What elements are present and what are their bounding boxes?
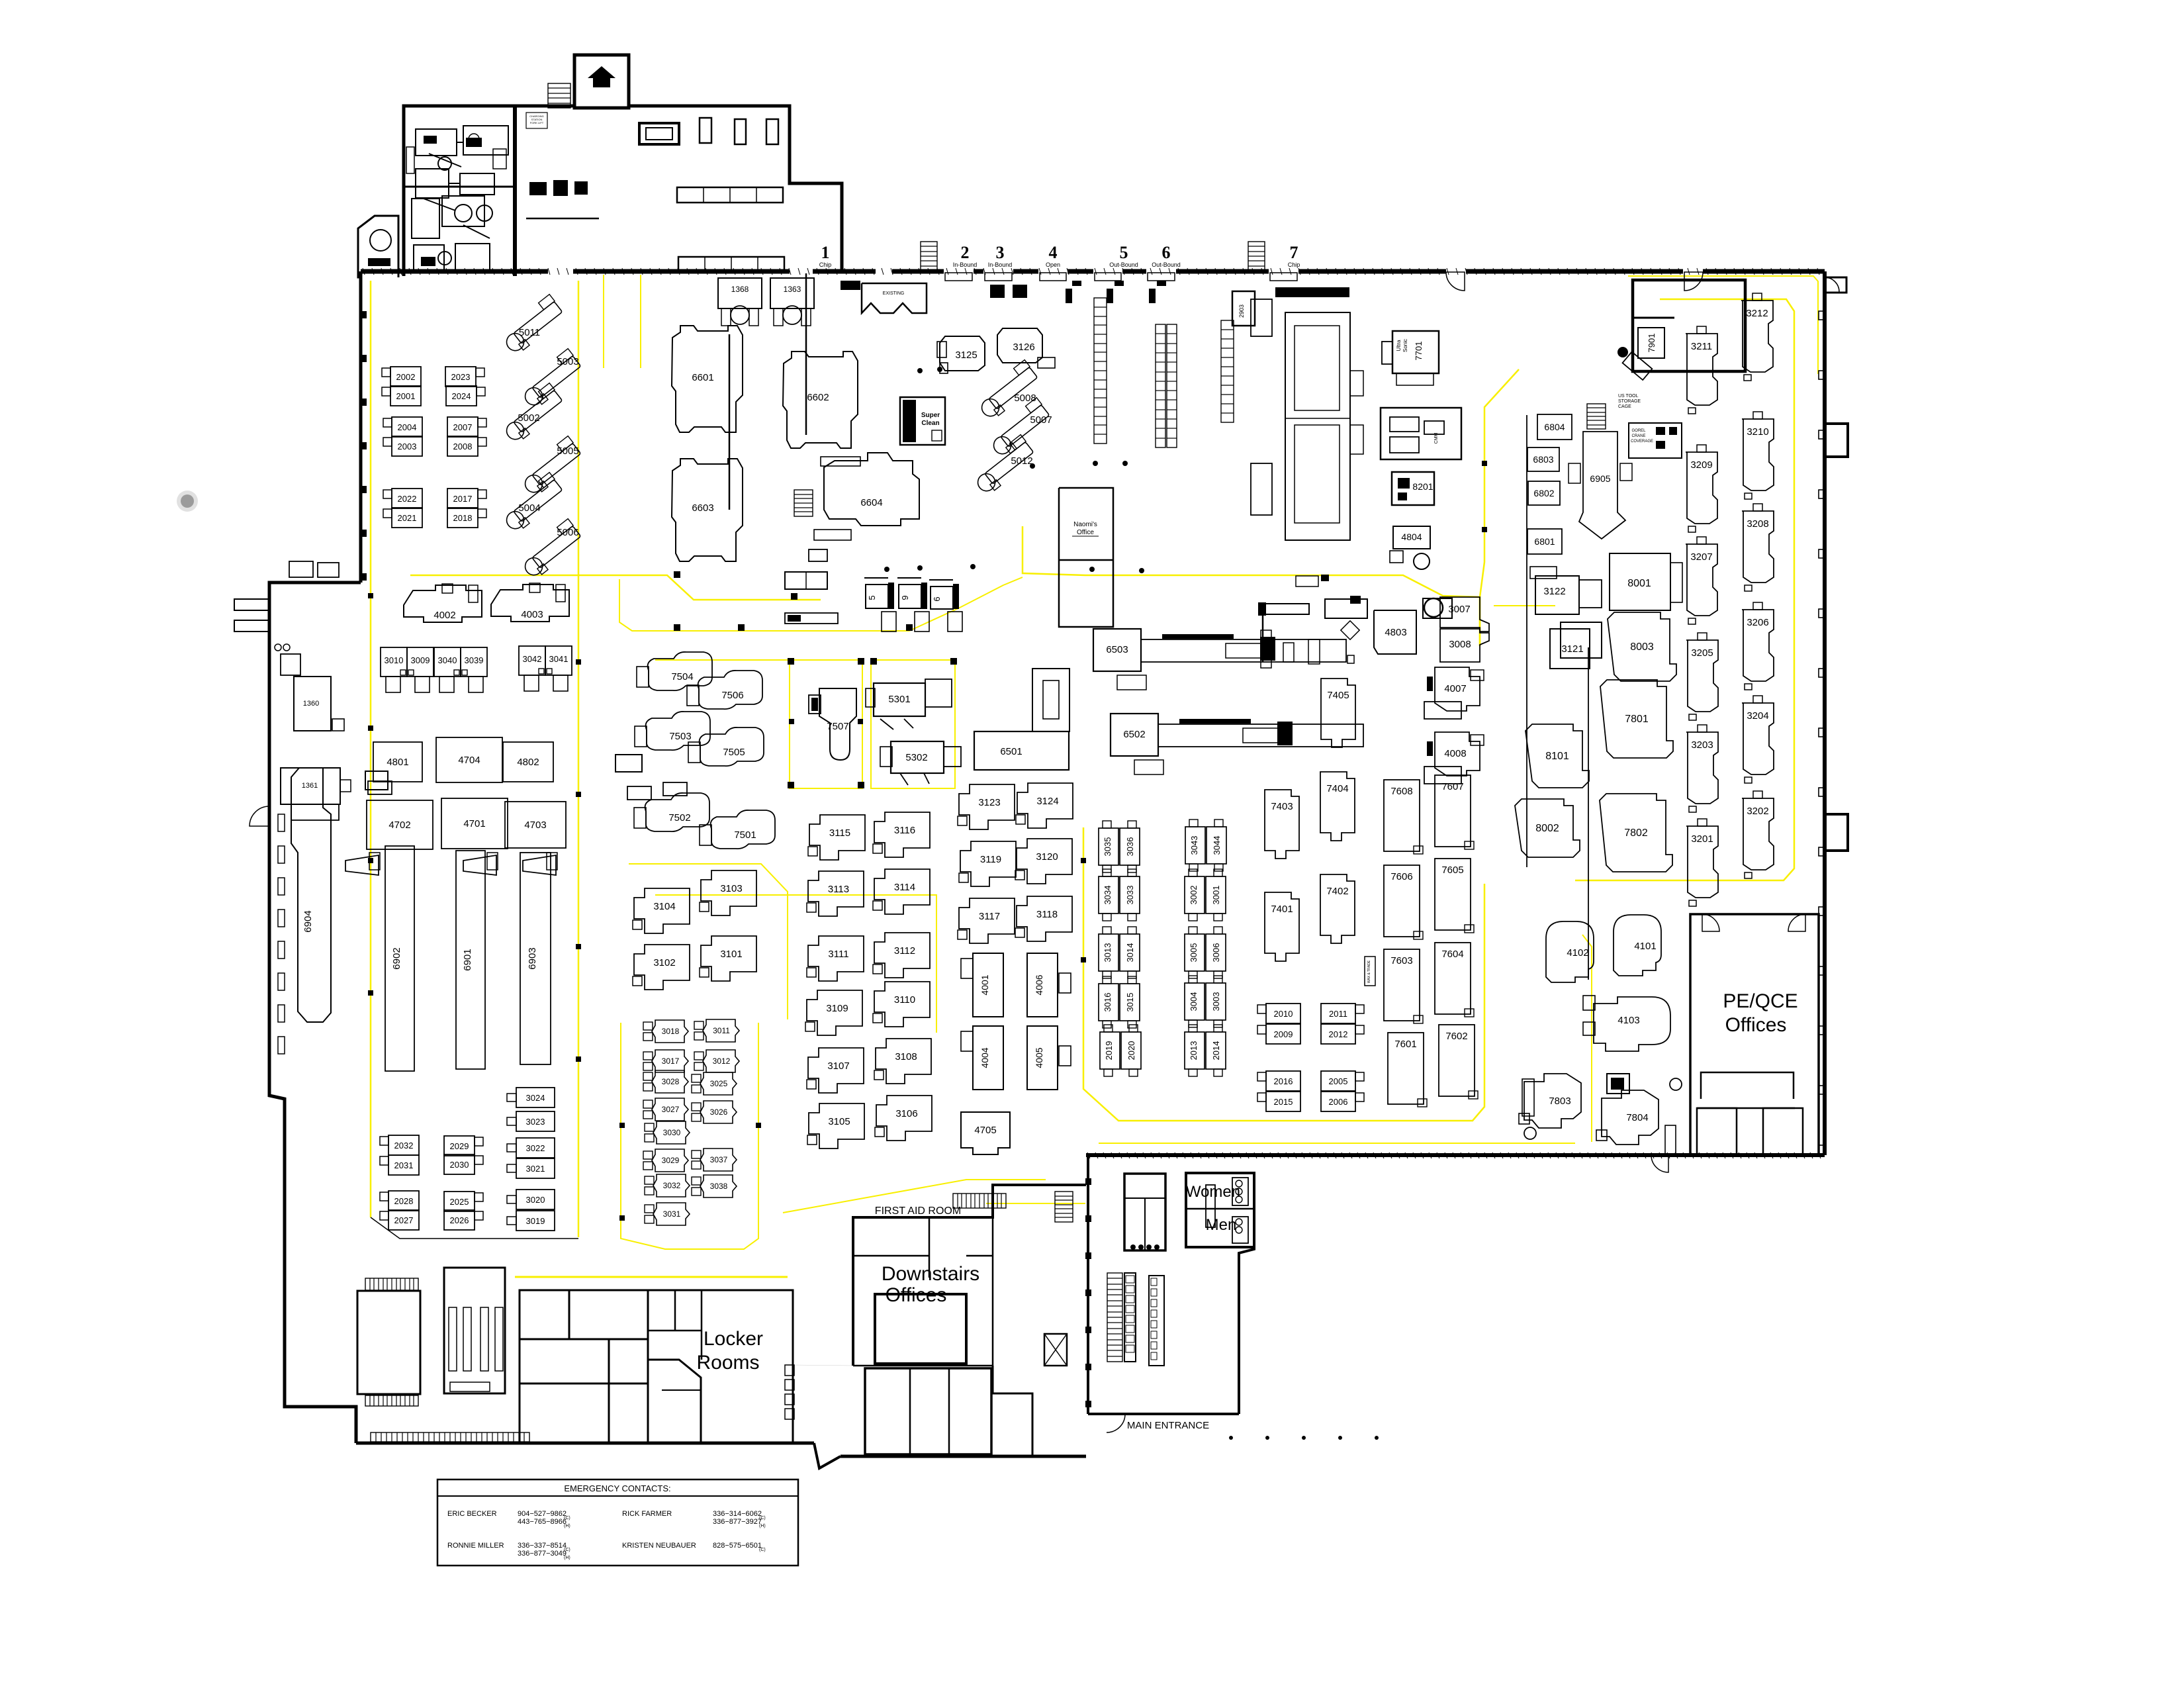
svg-text:3126: 3126 <box>1013 342 1034 353</box>
svg-text:6603: 6603 <box>692 502 713 514</box>
svg-text:EMERGENCY CONTACTS:: EMERGENCY CONTACTS: <box>564 1483 670 1493</box>
svg-text:3010: 3010 <box>385 655 404 665</box>
svg-text:9: 9 <box>900 595 910 600</box>
svg-text:3021: 3021 <box>526 1164 545 1174</box>
svg-text:5: 5 <box>867 595 877 600</box>
svg-text:4101: 4101 <box>1634 941 1656 952</box>
svg-text:7507: 7507 <box>827 721 848 732</box>
svg-text:(H): (H) <box>564 1556 570 1560</box>
svg-text:3034: 3034 <box>1103 886 1113 905</box>
svg-text:5003: 5003 <box>557 356 578 367</box>
svg-text:2015: 2015 <box>1274 1097 1293 1107</box>
svg-text:2006: 2006 <box>1329 1097 1348 1107</box>
svg-text:2021: 2021 <box>398 513 417 523</box>
svg-text:FIRST AID ROOM: FIRST AID ROOM <box>875 1205 961 1217</box>
svg-text:6802: 6802 <box>1533 488 1554 498</box>
svg-text:7401: 7401 <box>1271 904 1293 915</box>
svg-text:6503: 6503 <box>1106 644 1128 655</box>
svg-text:3035: 3035 <box>1103 837 1113 857</box>
svg-text:1361: 1361 <box>302 782 318 790</box>
svg-text:CRANE: CRANE <box>1631 434 1645 438</box>
svg-text:Chip: Chip <box>1288 261 1300 268</box>
svg-text:3115: 3115 <box>829 827 850 839</box>
svg-text:3116: 3116 <box>894 825 915 836</box>
svg-text:2012: 2012 <box>1329 1029 1348 1039</box>
svg-text:4001: 4001 <box>979 974 990 995</box>
svg-text:CAGE: CAGE <box>1618 404 1631 409</box>
svg-text:Downstairs: Downstairs <box>882 1263 979 1285</box>
svg-text:PE/QCE: PE/QCE <box>1723 990 1797 1012</box>
svg-text:336−877−3927: 336−877−3927 <box>713 1518 762 1526</box>
svg-text:ERIC BECKER: ERIC BECKER <box>447 1510 497 1518</box>
svg-text:904−527−9862: 904−527−9862 <box>518 1510 567 1518</box>
svg-text:4705: 4705 <box>974 1125 996 1136</box>
svg-text:5004: 5004 <box>518 502 540 514</box>
svg-text:7502: 7502 <box>668 812 690 823</box>
svg-text:7901: 7901 <box>1647 334 1657 353</box>
svg-text:7606: 7606 <box>1390 871 1412 882</box>
svg-text:3117: 3117 <box>979 911 1000 922</box>
svg-text:RICK FARMER: RICK FARMER <box>622 1510 672 1518</box>
svg-text:3104: 3104 <box>653 901 675 912</box>
svg-text:6804: 6804 <box>1544 422 1565 432</box>
svg-text:MAIN ENTRANCE: MAIN ENTRANCE <box>1127 1420 1209 1431</box>
svg-text:3006: 3006 <box>1211 943 1221 962</box>
svg-text:2008: 2008 <box>453 442 473 451</box>
svg-text:7503: 7503 <box>669 731 691 742</box>
svg-text:3013: 3013 <box>1103 943 1113 962</box>
svg-text:2022: 2022 <box>398 494 417 504</box>
svg-text:7804: 7804 <box>1626 1112 1648 1123</box>
svg-text:4802: 4802 <box>517 757 539 768</box>
svg-text:5012: 5012 <box>1011 455 1032 467</box>
svg-text:3202: 3202 <box>1747 806 1768 817</box>
svg-text:2010: 2010 <box>1274 1009 1293 1019</box>
svg-text:3026: 3026 <box>710 1107 728 1117</box>
svg-text:2004: 2004 <box>398 422 417 432</box>
svg-text:2014: 2014 <box>1211 1041 1221 1060</box>
svg-text:7506: 7506 <box>721 690 743 701</box>
svg-text:2903: 2903 <box>1238 305 1245 318</box>
svg-text:4004: 4004 <box>979 1047 990 1068</box>
svg-text:3039: 3039 <box>465 655 484 665</box>
svg-text:5007: 5007 <box>1030 414 1052 426</box>
svg-text:3014: 3014 <box>1125 943 1135 962</box>
svg-text:3: 3 <box>996 243 1005 262</box>
svg-text:2007: 2007 <box>453 422 473 432</box>
svg-text:7803: 7803 <box>1549 1096 1570 1107</box>
svg-text:3005: 3005 <box>1189 943 1199 962</box>
svg-text:7: 7 <box>1290 243 1298 262</box>
svg-text:7604: 7604 <box>1441 949 1463 960</box>
svg-text:7404: 7404 <box>1326 783 1348 794</box>
svg-text:6803: 6803 <box>1533 454 1553 465</box>
svg-text:3114: 3114 <box>894 882 915 893</box>
svg-text:STORAGE: STORAGE <box>1618 399 1641 404</box>
svg-text:3033: 3033 <box>1125 886 1135 905</box>
svg-text:3211: 3211 <box>1691 341 1712 352</box>
svg-text:6904: 6904 <box>302 910 314 932</box>
svg-text:EXISTING: EXISTING <box>883 291 905 296</box>
svg-text:In-Bound: In-Bound <box>953 261 978 268</box>
svg-text:7801: 7801 <box>1625 714 1649 725</box>
svg-text:3042: 3042 <box>523 654 542 664</box>
svg-text:4102: 4102 <box>1567 947 1588 959</box>
svg-text:3016: 3016 <box>1103 993 1113 1012</box>
svg-text:6903: 6903 <box>527 947 538 969</box>
svg-text:4: 4 <box>1049 243 1058 262</box>
svg-text:3210: 3210 <box>1747 426 1768 438</box>
svg-text:2001: 2001 <box>396 391 416 401</box>
svg-text:Open: Open <box>1046 261 1060 268</box>
svg-text:2016: 2016 <box>1274 1076 1293 1086</box>
svg-text:3031: 3031 <box>663 1209 681 1219</box>
svg-text:2017: 2017 <box>453 494 473 504</box>
svg-text:3125: 3125 <box>955 350 977 361</box>
svg-text:2029: 2029 <box>450 1141 469 1151</box>
svg-text:3208: 3208 <box>1747 518 1768 530</box>
svg-text:RONNIE MILLER: RONNIE MILLER <box>447 1542 504 1550</box>
svg-text:3103: 3103 <box>720 883 742 894</box>
svg-text:443−765−8966: 443−765−8966 <box>518 1518 567 1526</box>
svg-text:336−314−6062: 336−314−6062 <box>713 1510 762 1518</box>
svg-text:4803: 4803 <box>1385 627 1406 638</box>
svg-text:(C): (C) <box>759 1548 766 1552</box>
svg-text:3008: 3008 <box>1449 639 1471 650</box>
svg-text:2023: 2023 <box>451 372 471 382</box>
svg-text:3043: 3043 <box>1189 836 1199 855</box>
svg-text:2011: 2011 <box>1329 1009 1347 1019</box>
svg-text:CMM: CMM <box>1434 432 1439 444</box>
svg-text:3029: 3029 <box>662 1156 680 1165</box>
svg-text:3041: 3041 <box>549 654 569 664</box>
svg-text:2: 2 <box>961 243 970 262</box>
svg-text:2027: 2027 <box>394 1215 414 1225</box>
svg-text:8101: 8101 <box>1545 751 1569 762</box>
svg-text:4006: 4006 <box>1034 974 1044 995</box>
svg-text:3203: 3203 <box>1691 739 1713 751</box>
svg-text:3002: 3002 <box>1189 886 1199 905</box>
svg-text:7601: 7601 <box>1394 1039 1416 1050</box>
svg-text:(H): (H) <box>564 1524 570 1528</box>
svg-text:3009: 3009 <box>411 655 430 665</box>
svg-text:6: 6 <box>1162 243 1171 262</box>
svg-text:7501: 7501 <box>734 829 756 841</box>
svg-text:3030: 3030 <box>663 1128 681 1137</box>
svg-text:7701: 7701 <box>1414 342 1424 361</box>
svg-text:3001: 3001 <box>1211 886 1221 905</box>
svg-text:3020: 3020 <box>526 1195 545 1205</box>
svg-text:3105: 3105 <box>828 1116 850 1127</box>
svg-text:2019: 2019 <box>1104 1041 1114 1060</box>
svg-text:7607: 7607 <box>1441 781 1463 792</box>
svg-text:7403: 7403 <box>1271 801 1293 812</box>
svg-text:2003: 2003 <box>398 442 417 451</box>
svg-text:3106: 3106 <box>895 1108 917 1119</box>
svg-text:336−337−8514: 336−337−8514 <box>518 1542 567 1550</box>
svg-text:6801: 6801 <box>1534 536 1555 547</box>
svg-text:8003: 8003 <box>1630 641 1654 653</box>
svg-text:3107: 3107 <box>827 1060 849 1072</box>
svg-text:3044: 3044 <box>1212 836 1222 855</box>
svg-text:2020: 2020 <box>1126 1041 1136 1060</box>
svg-text:3209: 3209 <box>1690 459 1712 471</box>
svg-text:2005: 2005 <box>1329 1076 1348 1086</box>
svg-text:4003: 4003 <box>521 609 543 620</box>
svg-text:2013: 2013 <box>1189 1041 1199 1060</box>
svg-text:7602: 7602 <box>1445 1031 1467 1042</box>
svg-text:US TOOL: US TOOL <box>1618 394 1639 399</box>
svg-text:5011: 5011 <box>519 327 540 338</box>
svg-text:828−575−6501: 828−575−6501 <box>713 1542 762 1550</box>
svg-text:Ultra: Ultra <box>1396 340 1402 351</box>
svg-text:3007: 3007 <box>1448 604 1470 615</box>
svg-text:8001: 8001 <box>1627 578 1651 589</box>
svg-text:3027: 3027 <box>662 1105 680 1114</box>
svg-text:7605: 7605 <box>1441 865 1463 876</box>
svg-text:5301: 5301 <box>888 694 910 705</box>
svg-text:3124: 3124 <box>1036 796 1058 807</box>
svg-text:3025: 3025 <box>710 1079 728 1088</box>
svg-text:5: 5 <box>1120 243 1128 262</box>
svg-text:3122: 3122 <box>1543 586 1565 597</box>
svg-text:3019: 3019 <box>526 1216 545 1226</box>
svg-text:Rooms: Rooms <box>696 1352 759 1374</box>
svg-text:FORK LIFT: FORK LIFT <box>530 121 544 124</box>
svg-text:7608: 7608 <box>1390 786 1412 797</box>
svg-text:6601: 6601 <box>692 372 713 383</box>
svg-text:4701: 4701 <box>463 818 485 829</box>
svg-text:7603: 7603 <box>1390 955 1412 966</box>
svg-text:3110: 3110 <box>894 994 915 1006</box>
svg-text:3121: 3121 <box>1561 643 1583 655</box>
svg-text:3023: 3023 <box>526 1117 545 1127</box>
svg-text:3123: 3123 <box>978 797 1000 808</box>
svg-text:Offices: Offices <box>1725 1014 1787 1036</box>
svg-text:3207: 3207 <box>1690 551 1712 563</box>
svg-text:3111: 3111 <box>828 949 848 960</box>
svg-text:3108: 3108 <box>895 1051 917 1062</box>
svg-text:8002: 8002 <box>1535 823 1559 834</box>
svg-text:6501: 6501 <box>1000 746 1022 757</box>
svg-text:4804: 4804 <box>1401 532 1422 542</box>
svg-text:Women: Women <box>1186 1183 1240 1201</box>
svg-text:3032: 3032 <box>663 1181 681 1190</box>
svg-text:1360: 1360 <box>303 700 319 708</box>
svg-text:7405: 7405 <box>1327 690 1349 701</box>
svg-text:Office: Office <box>1077 529 1094 536</box>
svg-text:4002: 4002 <box>433 610 455 621</box>
svg-text:8201: 8201 <box>1412 481 1433 492</box>
svg-text:4704: 4704 <box>458 755 480 766</box>
svg-text:3011: 3011 <box>713 1026 730 1035</box>
svg-text:3036: 3036 <box>1125 837 1135 857</box>
svg-text:Chip: Chip <box>819 261 832 268</box>
svg-text:3109: 3109 <box>826 1003 848 1014</box>
svg-text:3004: 3004 <box>1189 992 1199 1011</box>
svg-text:Locker: Locker <box>704 1328 763 1350</box>
svg-text:3206: 3206 <box>1747 617 1768 628</box>
svg-text:2002: 2002 <box>396 372 416 382</box>
svg-text:In-Bound: In-Bound <box>988 261 1013 268</box>
svg-text:336−877−3049: 336−877−3049 <box>518 1550 567 1558</box>
svg-text:Out-Bound: Out-Bound <box>1152 261 1181 268</box>
svg-text:6902: 6902 <box>391 947 402 969</box>
svg-text:KRISTEN NEUBAUER: KRISTEN NEUBAUER <box>622 1542 696 1550</box>
svg-text:1363: 1363 <box>784 285 801 294</box>
svg-text:7504: 7504 <box>671 671 693 682</box>
svg-text:3205: 3205 <box>1691 647 1713 659</box>
svg-text:2026: 2026 <box>450 1215 469 1225</box>
svg-text:2032: 2032 <box>394 1141 414 1150</box>
svg-text:COVERAGE: COVERAGE <box>1631 440 1653 444</box>
svg-text:(H): (H) <box>759 1524 766 1528</box>
svg-text:1: 1 <box>821 243 830 262</box>
svg-text:3113: 3113 <box>828 884 849 895</box>
svg-text:6502: 6502 <box>1123 729 1145 740</box>
svg-text:4008: 4008 <box>1444 748 1466 759</box>
svg-text:3024: 3024 <box>526 1093 545 1103</box>
svg-text:7402: 7402 <box>1326 886 1348 897</box>
svg-text:Men: Men <box>1206 1216 1237 1234</box>
svg-text:6602: 6602 <box>807 392 829 403</box>
svg-text:5008: 5008 <box>1014 393 1036 404</box>
svg-text:3212: 3212 <box>1746 308 1768 319</box>
svg-text:4702: 4702 <box>388 820 410 831</box>
svg-text:3012: 3012 <box>713 1056 731 1066</box>
svg-text:GOREL: GOREL <box>1631 429 1646 433</box>
svg-text:Clean: Clean <box>921 420 939 427</box>
svg-text:2031: 2031 <box>394 1160 414 1170</box>
svg-text:2009: 2009 <box>1274 1029 1293 1039</box>
svg-text:Naomi's: Naomi's <box>1073 521 1097 528</box>
svg-text:3112: 3112 <box>894 945 915 957</box>
svg-text:5006: 5006 <box>557 527 578 538</box>
svg-text:4103: 4103 <box>1617 1015 1639 1026</box>
svg-text:3102: 3102 <box>653 957 675 968</box>
svg-text:3015: 3015 <box>1125 993 1135 1012</box>
svg-text:Offices: Offices <box>886 1284 947 1306</box>
svg-text:3204: 3204 <box>1747 710 1768 722</box>
svg-text:3003: 3003 <box>1211 992 1221 1011</box>
svg-text:2025: 2025 <box>450 1197 469 1207</box>
svg-text:3038: 3038 <box>710 1182 728 1191</box>
svg-text:3037: 3037 <box>710 1155 728 1164</box>
svg-text:3118: 3118 <box>1036 909 1058 920</box>
svg-text:3040: 3040 <box>438 655 457 665</box>
svg-text:5002: 5002 <box>518 412 539 424</box>
svg-text:4801: 4801 <box>387 757 408 768</box>
svg-text:2028: 2028 <box>394 1196 414 1206</box>
svg-text:2018: 2018 <box>453 513 473 523</box>
svg-text:3017: 3017 <box>662 1056 680 1066</box>
svg-text:1368: 1368 <box>731 285 749 294</box>
svg-text:2024: 2024 <box>452 391 471 401</box>
svg-text:3018: 3018 <box>662 1027 680 1036</box>
svg-text:5302: 5302 <box>905 752 927 763</box>
svg-text:Super: Super <box>921 412 940 419</box>
svg-text:Out-Bound: Out-Bound <box>1109 261 1138 268</box>
svg-text:6604: 6604 <box>860 497 882 508</box>
svg-text:4007: 4007 <box>1444 683 1466 694</box>
svg-text:3119: 3119 <box>980 854 1001 865</box>
svg-text:4703: 4703 <box>524 820 546 831</box>
svg-text:3101: 3101 <box>720 949 742 960</box>
svg-text:Sonic: Sonic <box>1402 339 1408 352</box>
svg-text:7802: 7802 <box>1624 827 1648 839</box>
svg-text:6901: 6901 <box>462 949 473 970</box>
svg-text:6: 6 <box>932 596 942 601</box>
svg-text:2030: 2030 <box>450 1160 469 1170</box>
svg-text:3201: 3201 <box>1691 833 1713 845</box>
svg-text:3120: 3120 <box>1036 851 1058 863</box>
svg-text:WAX & TRADE: WAX & TRADE <box>1367 960 1371 983</box>
svg-text:3022: 3022 <box>526 1143 545 1153</box>
svg-text:4005: 4005 <box>1034 1047 1044 1068</box>
svg-text:7505: 7505 <box>723 747 745 758</box>
svg-text:5005: 5005 <box>557 445 578 457</box>
svg-text:6905: 6905 <box>1590 473 1610 484</box>
svg-text:3028: 3028 <box>662 1077 680 1086</box>
